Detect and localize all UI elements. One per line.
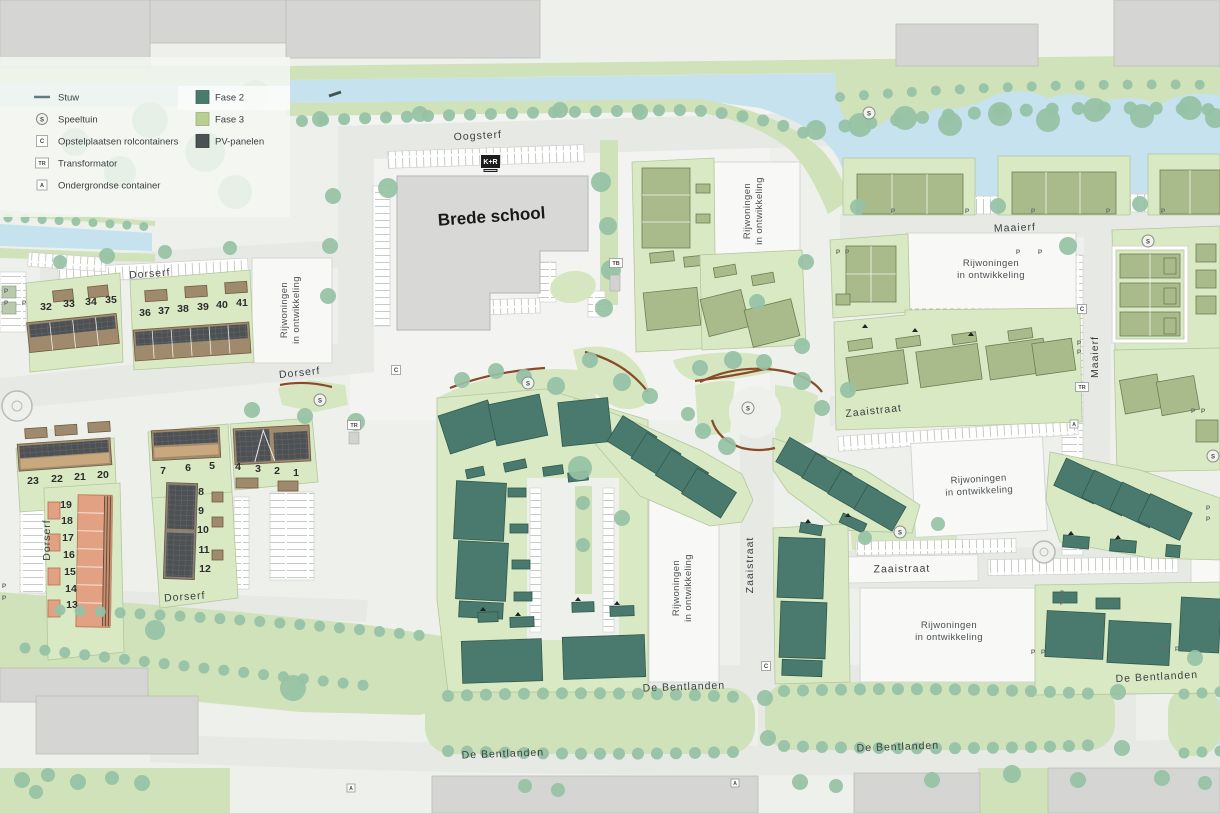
svg-text:19: 19 bbox=[60, 499, 72, 511]
street-dorserf-3: Dorserf bbox=[41, 519, 53, 560]
svg-text:10: 10 bbox=[197, 524, 209, 536]
svg-text:TR: TR bbox=[350, 423, 357, 429]
street-zaaistraat-3: Zaaistraat bbox=[744, 537, 756, 594]
legend-panel: Stuw S Speeltuin C Opstelplaatsen rolcon… bbox=[0, 57, 290, 217]
svg-text:P: P bbox=[1060, 600, 1065, 607]
svg-text:17: 17 bbox=[62, 532, 74, 544]
map-canvas: Rijwoningen in ontwikkeling Rijwoningen … bbox=[0, 0, 1220, 813]
svg-text:21: 21 bbox=[74, 471, 86, 483]
svg-text:P: P bbox=[1165, 646, 1170, 653]
svg-text:P: P bbox=[1077, 340, 1082, 347]
svg-text:18: 18 bbox=[61, 515, 73, 527]
svg-text:P: P bbox=[1088, 651, 1093, 658]
svg-text:Rijwoningen: Rijwoningen bbox=[742, 183, 753, 239]
svg-text:in ontwikkeling: in ontwikkeling bbox=[683, 554, 694, 622]
svg-text:P: P bbox=[1038, 249, 1043, 256]
svg-text:36: 36 bbox=[139, 307, 151, 319]
street-oogsterf: Oogsterf bbox=[453, 129, 502, 144]
svg-text:P: P bbox=[1041, 649, 1046, 656]
svg-text:P: P bbox=[965, 208, 970, 215]
svg-text:C: C bbox=[394, 368, 399, 374]
svg-text:P: P bbox=[1106, 208, 1111, 215]
svg-text:P: P bbox=[2, 595, 7, 602]
legend-item-pv-panelen: PV-panelen bbox=[196, 135, 264, 148]
svg-text:37: 37 bbox=[158, 305, 170, 317]
svg-text:Fase 3: Fase 3 bbox=[215, 115, 244, 126]
svg-text:S: S bbox=[867, 112, 871, 118]
svg-text:P: P bbox=[1201, 408, 1206, 415]
svg-text:2: 2 bbox=[274, 465, 280, 477]
site-plan-map: Rijwoningen in ontwikkeling Rijwoningen … bbox=[0, 0, 1220, 813]
kiss-ride-sign: K+R bbox=[481, 155, 500, 172]
street-zaaistraat-2: Zaaistraat bbox=[874, 563, 931, 576]
svg-text:P: P bbox=[4, 288, 9, 295]
svg-text:1: 1 bbox=[293, 467, 299, 479]
svg-text:A: A bbox=[349, 786, 353, 792]
svg-text:P: P bbox=[1098, 651, 1103, 658]
roundabout-west bbox=[2, 391, 32, 421]
dev-block-1-line2: in ontwikkeling bbox=[291, 276, 302, 344]
legend-item-transformator: TR Transformator bbox=[36, 158, 118, 170]
legend-item-rolcontainers: C Opstelplaatsen rolcontainers bbox=[37, 136, 179, 148]
svg-text:PV-panelen: PV-panelen bbox=[215, 137, 264, 148]
svg-text:4: 4 bbox=[235, 461, 241, 473]
svg-text:20: 20 bbox=[97, 469, 109, 481]
street-maaierf-2: Maaierf bbox=[1089, 336, 1101, 378]
legend-item-fase2: Fase 2 bbox=[196, 91, 244, 104]
svg-text:Rijwoningen: Rijwoningen bbox=[921, 620, 977, 631]
svg-text:P: P bbox=[836, 249, 841, 256]
svg-text:K+R: K+R bbox=[483, 159, 497, 166]
svg-text:Speeltuin: Speeltuin bbox=[58, 115, 98, 126]
svg-text:P: P bbox=[1031, 649, 1036, 656]
svg-text:TR: TR bbox=[1078, 385, 1085, 391]
svg-text:Stuw: Stuw bbox=[58, 93, 79, 104]
svg-text:P: P bbox=[845, 249, 850, 256]
svg-text:P: P bbox=[1206, 516, 1211, 523]
svg-text:S: S bbox=[318, 399, 322, 405]
svg-text:P: P bbox=[22, 300, 27, 307]
svg-text:34: 34 bbox=[85, 296, 97, 308]
svg-text:39: 39 bbox=[197, 301, 209, 313]
svg-text:S: S bbox=[40, 118, 44, 124]
svg-text:S: S bbox=[746, 407, 750, 413]
svg-text:TR: TR bbox=[38, 161, 45, 167]
svg-text:S: S bbox=[1211, 455, 1215, 461]
street-maaierf-1: Maaierf bbox=[994, 221, 1036, 234]
svg-text:11: 11 bbox=[198, 544, 209, 556]
svg-text:C: C bbox=[764, 664, 769, 670]
svg-text:in ontwikkeling: in ontwikkeling bbox=[957, 270, 1025, 281]
svg-text:23: 23 bbox=[27, 475, 39, 487]
svg-text:22: 22 bbox=[51, 473, 63, 485]
svg-text:Transformator: Transformator bbox=[58, 159, 117, 170]
svg-text:33: 33 bbox=[63, 298, 75, 310]
svg-text:6: 6 bbox=[185, 462, 191, 474]
svg-text:A: A bbox=[40, 183, 44, 189]
svg-text:P: P bbox=[1031, 208, 1036, 215]
svg-text:P: P bbox=[1060, 590, 1065, 597]
svg-text:P: P bbox=[2, 583, 7, 590]
svg-text:16: 16 bbox=[63, 549, 75, 561]
svg-text:A: A bbox=[733, 781, 737, 787]
svg-text:Ondergrondse container: Ondergrondse container bbox=[58, 181, 160, 192]
svg-text:Opstelplaatsen rolcontainers: Opstelplaatsen rolcontainers bbox=[58, 137, 179, 148]
svg-text:Rijwoningen: Rijwoningen bbox=[671, 560, 682, 616]
svg-text:40: 40 bbox=[216, 299, 228, 311]
svg-text:P: P bbox=[1206, 505, 1211, 512]
svg-text:P: P bbox=[891, 208, 896, 215]
svg-text:12: 12 bbox=[199, 563, 211, 575]
svg-text:P: P bbox=[1016, 249, 1021, 256]
fase2-swatch bbox=[196, 91, 209, 104]
svg-text:32: 32 bbox=[40, 301, 52, 313]
svg-text:7: 7 bbox=[160, 465, 166, 477]
svg-text:Rijwoningen: Rijwoningen bbox=[963, 258, 1019, 269]
dev-block-1-line1: Rijwoningen bbox=[279, 282, 290, 338]
svg-text:3: 3 bbox=[255, 463, 261, 475]
roundabout-east bbox=[1033, 541, 1055, 563]
svg-text:41: 41 bbox=[236, 297, 248, 309]
svg-text:P: P bbox=[4, 300, 9, 307]
svg-text:P: P bbox=[1191, 408, 1196, 415]
svg-text:S: S bbox=[898, 531, 902, 537]
legend-item-fase3: Fase 3 bbox=[196, 113, 244, 126]
svg-text:Fase 2: Fase 2 bbox=[215, 93, 244, 104]
svg-text:5: 5 bbox=[209, 460, 215, 472]
legend-item-speeltuin: S Speeltuin bbox=[37, 114, 98, 126]
svg-text:8: 8 bbox=[198, 486, 204, 498]
svg-text:15: 15 bbox=[64, 566, 76, 578]
svg-text:P: P bbox=[1161, 208, 1166, 215]
svg-text:S: S bbox=[1146, 240, 1150, 246]
svg-text:C: C bbox=[40, 139, 45, 145]
svg-text:in ontwikkeling: in ontwikkeling bbox=[915, 632, 983, 643]
pv-panelen-swatch bbox=[196, 135, 209, 148]
svg-text:14: 14 bbox=[65, 583, 77, 595]
svg-text:in ontwikkeling: in ontwikkeling bbox=[754, 177, 765, 245]
svg-text:S: S bbox=[526, 382, 530, 388]
fase3-swatch bbox=[196, 113, 209, 126]
svg-text:P: P bbox=[1175, 646, 1180, 653]
svg-text:P: P bbox=[1077, 349, 1082, 356]
svg-text:A: A bbox=[1072, 422, 1076, 428]
svg-text:38: 38 bbox=[177, 303, 189, 315]
svg-text:9: 9 bbox=[198, 505, 204, 517]
svg-text:TB: TB bbox=[612, 261, 619, 267]
svg-text:C: C bbox=[1080, 307, 1085, 313]
svg-text:35: 35 bbox=[105, 294, 117, 306]
